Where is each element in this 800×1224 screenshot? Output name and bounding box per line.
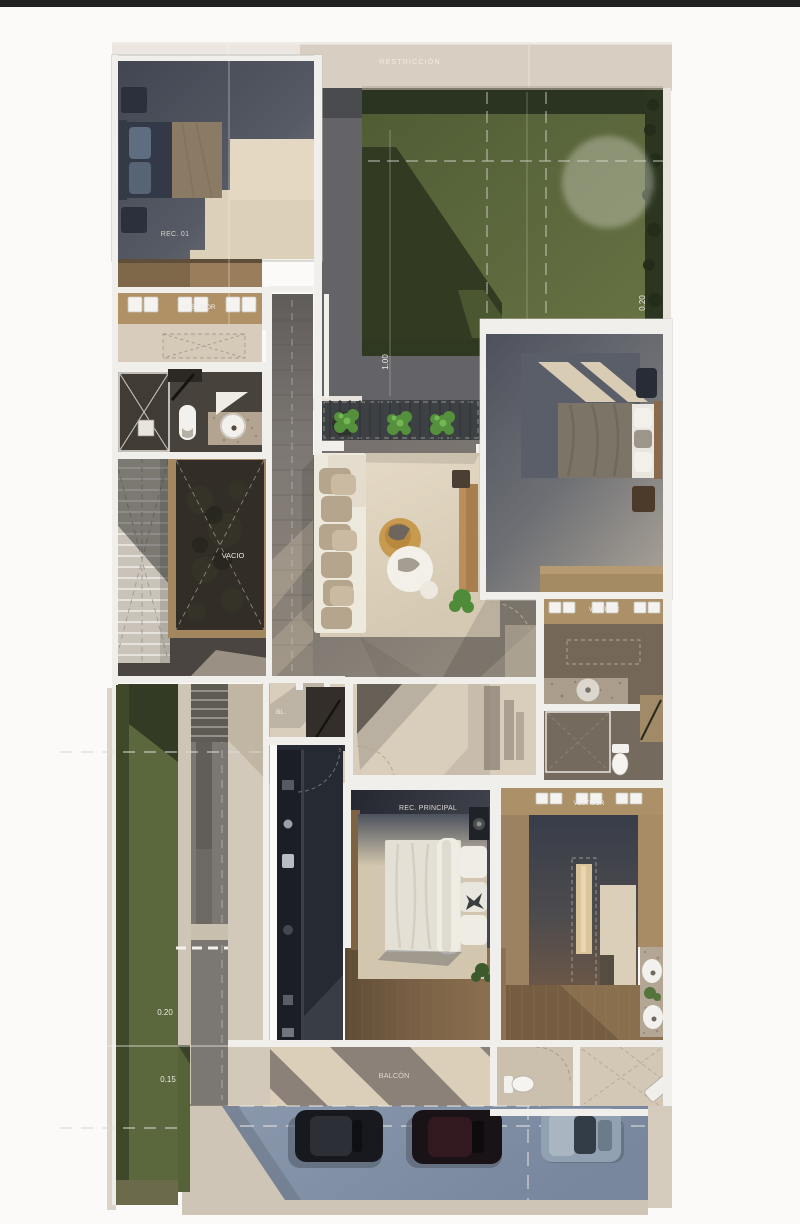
svg-text:VACIO: VACIO xyxy=(222,551,245,560)
svg-text:1.00: 1.00 xyxy=(381,354,390,370)
svg-text:BL.: BL. xyxy=(276,709,286,716)
svg-text:REC. PRINCIPAL: REC. PRINCIPAL xyxy=(399,805,457,812)
svg-text:0.15: 0.15 xyxy=(160,1075,176,1084)
svg-text:0.20: 0.20 xyxy=(638,295,647,311)
svg-text:0.20: 0.20 xyxy=(157,1008,173,1017)
svg-text:REC. 01: REC. 01 xyxy=(161,231,190,238)
svg-text:VESTIDOR: VESTIDOR xyxy=(182,304,216,311)
svg-text:BALCÓN: BALCÓN xyxy=(379,1071,410,1080)
svg-text:VESTIDOR: VESTIDOR xyxy=(574,801,605,807)
svg-text:RESTRICCIÓN: RESTRICCIÓN xyxy=(379,57,440,66)
svg-text:VESTIDOR: VESTIDOR xyxy=(589,607,620,613)
